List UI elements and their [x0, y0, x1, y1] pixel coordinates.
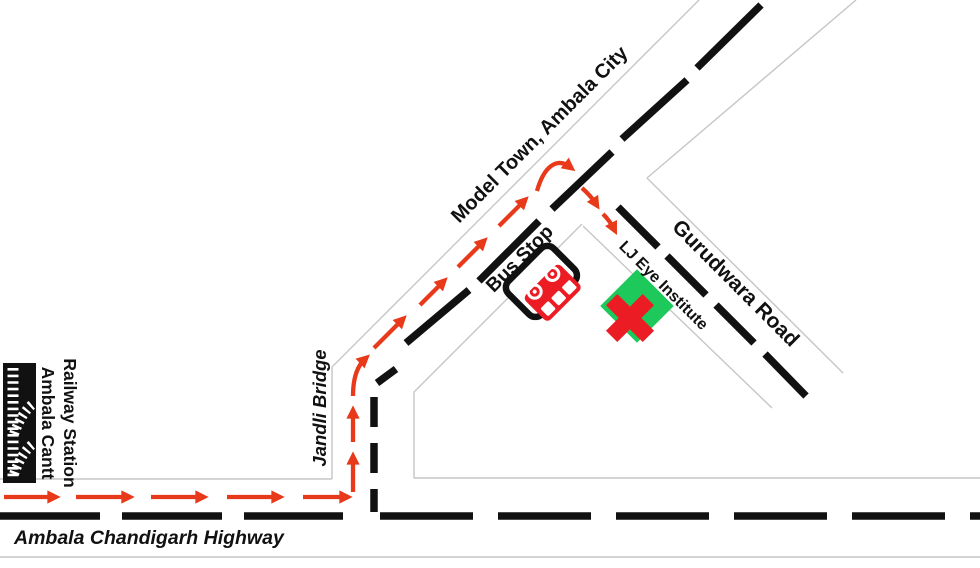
gurudwara-dash-4: [765, 354, 806, 396]
map-canvas: Ambala Cantt Railway Station: [0, 0, 980, 568]
route-arrow-turn-right: [353, 359, 365, 396]
route-arrow-diagonal-4: [499, 201, 524, 226]
route-arrow-approach-1: [582, 188, 596, 204]
modeltown-dash-bend: [377, 369, 396, 383]
road-center-dashes: [0, 5, 980, 516]
modeltown-dash-5: [697, 5, 761, 68]
railway-station-label-line1: Ambala Cantt: [38, 367, 58, 480]
modeltown-dash-1: [406, 290, 469, 343]
modeltown-dash-3: [552, 152, 612, 209]
highway-label: Ambala Chandigarh Highway: [13, 527, 285, 549]
model-town-road-label: Model Town, Ambala City: [447, 42, 633, 228]
gurudwara-road-label: Gurudwara Road: [668, 215, 804, 351]
modeltown-dash-4: [622, 80, 687, 139]
route-arrow-diagonal-1: [374, 320, 402, 348]
route-arrow-diagonal-3: [458, 242, 483, 267]
railway-station-icon: [3, 363, 36, 483]
route-arrow-diagonal-2: [420, 282, 443, 305]
route-arrow-approach-2: [603, 214, 614, 229]
direction-map: Ambala Cantt Railway Station: [0, 0, 980, 568]
jandli-bridge-label: Jandli Bridge: [309, 349, 330, 466]
railway-station-label-line2: Railway Station: [60, 358, 80, 487]
route-arrow-crossover-arc: [537, 163, 570, 191]
